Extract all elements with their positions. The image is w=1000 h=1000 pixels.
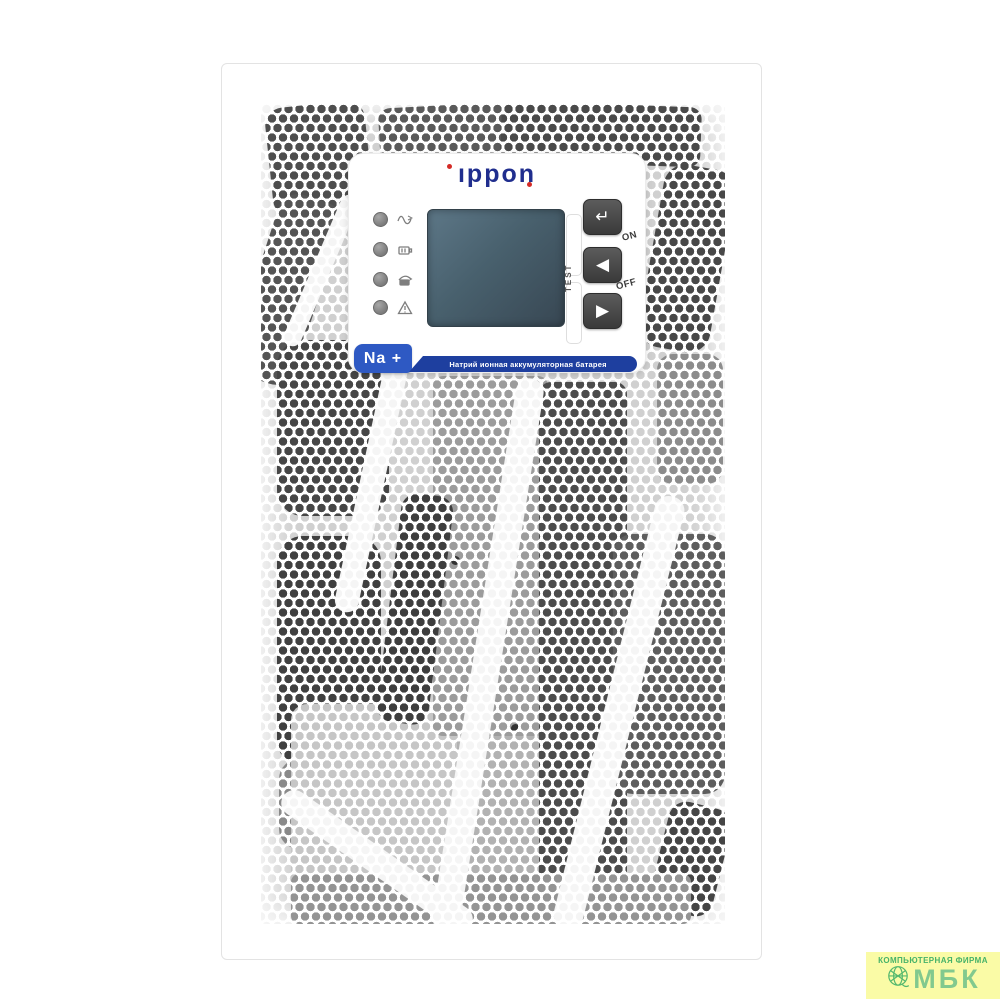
ups-device: ıppon [221, 63, 762, 960]
left-arrow-button[interactable]: ◀ [583, 247, 622, 283]
control-panel: ıppon [348, 153, 646, 373]
logo-red-dot [447, 164, 452, 169]
grille-speck [451, 556, 460, 565]
right-arrow-icon: ▶ [596, 303, 609, 320]
grille-speck [511, 724, 520, 733]
led-fault [373, 300, 388, 315]
grille-patch [291, 874, 691, 924]
battery-type-banner: Натрий ионная аккумуляторная батарея [409, 356, 637, 372]
grille-patch [657, 354, 723, 484]
brand-logo-text: ıppon [458, 162, 536, 187]
na-plus-badge: Na + [354, 344, 412, 373]
lcd-screen [427, 209, 565, 327]
enter-button[interactable]: ↵ [583, 199, 622, 235]
led-ac-normal [373, 212, 388, 227]
brand-logo: ıppon [349, 162, 645, 187]
left-arrow-icon: ◀ [596, 257, 609, 274]
store-watermark: КОМПЬЮТЕРНАЯ ФИРМА МБК [866, 952, 1000, 999]
battery-icon [397, 242, 413, 258]
test-label: TEST [564, 240, 573, 292]
ac-normal-icon [397, 212, 413, 228]
logo-red-dot [527, 182, 532, 187]
globe-mouse-icon [885, 964, 911, 995]
right-arrow-button[interactable]: ▶ [583, 293, 622, 329]
battery-type-caption: Натрий ионная аккумуляторная батарея [439, 360, 606, 369]
watermark-company-name: МБК [913, 966, 980, 993]
led-bypass [373, 272, 388, 287]
enter-icon: ↵ [595, 209, 609, 226]
led-battery [373, 242, 388, 257]
bypass-icon [397, 272, 413, 288]
on-label: ON [621, 229, 639, 244]
product-photo: ıppon [0, 0, 1000, 1000]
fault-icon [397, 300, 413, 316]
